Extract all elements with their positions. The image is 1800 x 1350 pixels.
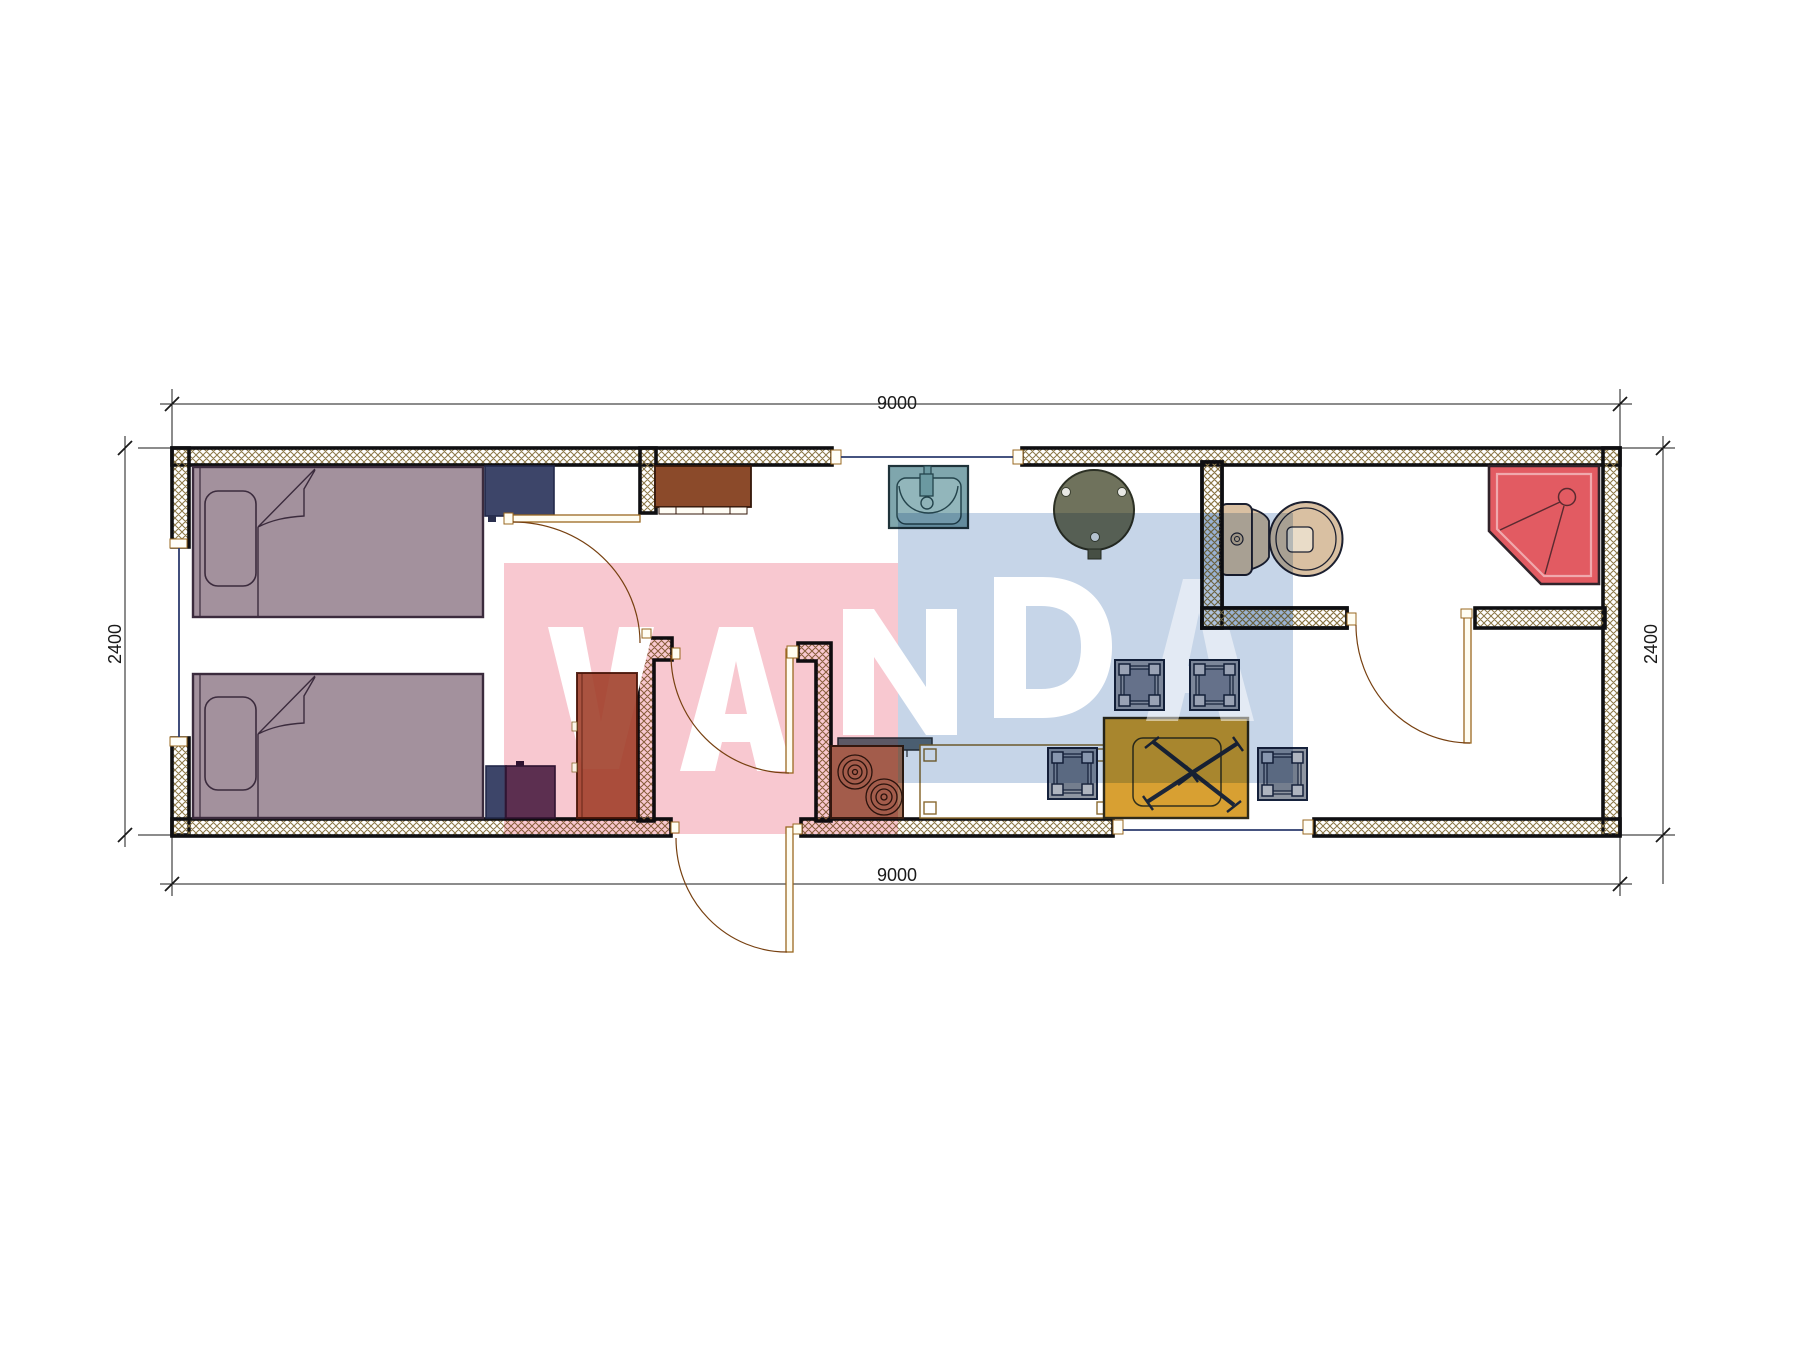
svg-text:2400: 2400 bbox=[1641, 624, 1661, 664]
svg-text:9000: 9000 bbox=[877, 393, 917, 413]
svg-text:9000: 9000 bbox=[877, 865, 917, 885]
svg-text:2400: 2400 bbox=[105, 624, 125, 664]
